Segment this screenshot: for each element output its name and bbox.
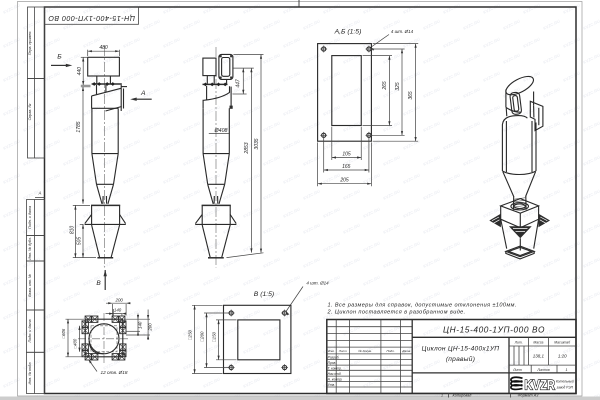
svg-text:□250: □250 — [188, 329, 193, 340]
svg-text:1. Все размеры для справок, до: 1. Все размеры для справок, допустимые о… — [328, 302, 517, 308]
svg-text:4 шт. Ø14: 4 шт. Ø14 — [306, 281, 329, 286]
svg-text:В (1:5): В (1:5) — [254, 291, 274, 298]
svg-text:Лист: Лист — [512, 368, 522, 372]
svg-text:440: 440 — [77, 67, 83, 76]
svg-text:□150: □150 — [212, 331, 217, 342]
svg-text:810: 810 — [69, 226, 75, 235]
svg-text:140: 140 — [114, 308, 122, 313]
svg-text:200: 200 — [115, 297, 124, 302]
svg-text:480: 480 — [99, 45, 108, 51]
svg-text:Дата: Дата — [401, 349, 410, 353]
svg-text:□200: □200 — [200, 331, 205, 342]
svg-text:Разраб.: Разраб. — [328, 355, 340, 359]
svg-text:А: А — [38, 191, 42, 196]
svg-text:Нач.отд.: Нач.отд. — [328, 372, 342, 376]
svg-text:Изм.: Изм. — [328, 349, 335, 353]
svg-text:365: 365 — [408, 91, 414, 100]
svg-text:2853: 2853 — [244, 142, 250, 154]
svg-text:Пров.: Пров. — [328, 361, 337, 365]
svg-text:1: 1 — [441, 394, 443, 398]
svg-text:Перв. примен.: Перв. примен. — [28, 31, 32, 56]
svg-text:ЦН-15-400-1УП-000 ВО: ЦН-15-400-1УП-000 ВО — [443, 324, 545, 334]
svg-text:Листов: Листов — [536, 368, 550, 372]
svg-text:12 отв. Ø18: 12 отв. Ø18 — [101, 370, 128, 375]
svg-text:Взам. инв. №: Взам. инв. № — [28, 274, 32, 297]
svg-text:№ докум.: № докум. — [358, 349, 372, 353]
svg-text:Утв.: Утв. — [328, 383, 336, 387]
svg-text:Лит.: Лит. — [514, 340, 523, 344]
svg-text:Циклон ЦН-15-400х1УП: Циклон ЦН-15-400х1УП — [422, 346, 500, 353]
svg-text:Н. контр.: Н. контр. — [328, 378, 343, 382]
svg-text:200: 200 — [147, 323, 152, 332]
svg-text:□606: □606 — [61, 328, 66, 338]
svg-text:□400: □400 — [73, 338, 78, 348]
svg-text:Масса: Масса — [533, 340, 543, 344]
svg-text:138,1: 138,1 — [533, 354, 545, 359]
svg-text:Б: Б — [57, 54, 62, 61]
svg-text:1:20: 1:20 — [558, 354, 567, 359]
svg-text:Лист: Лист — [338, 349, 347, 353]
svg-text:3035: 3035 — [254, 138, 260, 149]
svg-text:105: 105 — [342, 152, 351, 158]
svg-text:165: 165 — [342, 164, 351, 170]
svg-text:Подп.: Подп. — [386, 349, 394, 353]
svg-text:(правый): (правый) — [446, 355, 475, 363]
svg-text:Масштаб: Масштаб — [554, 340, 570, 344]
svg-text:KVZR: KVZR — [525, 378, 556, 393]
svg-text:205: 205 — [339, 178, 349, 184]
svg-text:Справ. №: Справ. № — [28, 104, 32, 121]
svg-text:505: 505 — [77, 237, 83, 246]
svg-text:завод РЭП: завод РЭП — [556, 386, 574, 390]
svg-text:ЦН-15-400-1УП-000 ВО: ЦН-15-400-1УП-000 ВО — [48, 14, 135, 22]
svg-text:140: 140 — [137, 321, 142, 329]
svg-text:1785: 1785 — [76, 121, 82, 132]
svg-text:Инв. № подл.: Инв. № подл. — [28, 362, 32, 385]
svg-text:А: А — [140, 90, 146, 97]
svg-text:325: 325 — [395, 82, 401, 91]
svg-text:В: В — [96, 280, 101, 287]
svg-text:Подп. и дата: Подп. и дата — [28, 319, 32, 342]
svg-text:А,Б (1:5): А,Б (1:5) — [334, 29, 362, 36]
svg-text:265: 265 — [382, 81, 388, 91]
svg-text:1: 1 — [566, 368, 568, 372]
svg-text:Копировал: Копировал — [453, 394, 473, 398]
svg-text:4 шт. Ø14: 4 шт. Ø14 — [391, 29, 414, 34]
svg-text:Подп. и дата: Подп. и дата — [28, 206, 32, 229]
svg-text:Ø408: Ø408 — [214, 128, 228, 134]
svg-text:Формат А3: Формат А3 — [518, 394, 540, 398]
svg-text:Инв. № дубл.: Инв. № дубл. — [28, 237, 32, 260]
svg-text:447: 447 — [236, 79, 242, 88]
svg-text:Котельный: Котельный — [556, 380, 574, 384]
svg-text:Т. контр.: Т. контр. — [328, 366, 342, 370]
svg-text:2. Циклон поставляется в разоб: 2. Циклон поставляется в разобранном вид… — [327, 309, 466, 315]
